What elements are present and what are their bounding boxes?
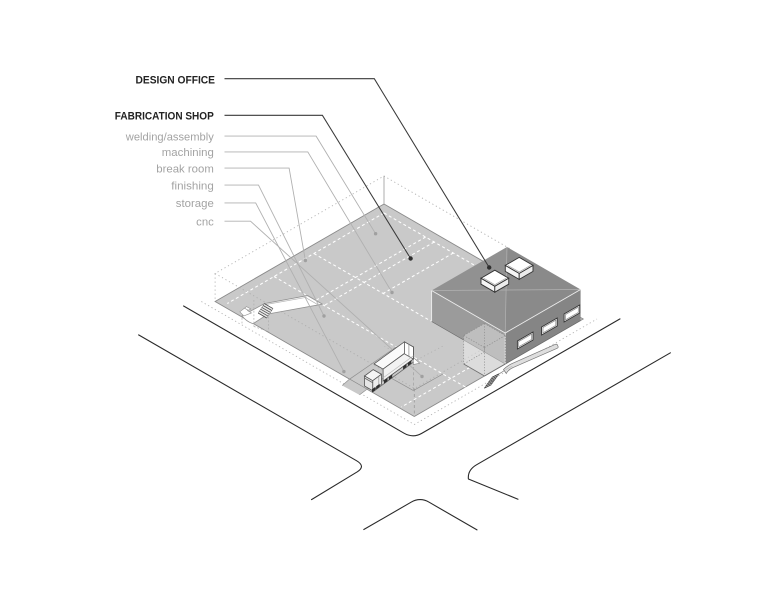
svg-text:finishing: finishing xyxy=(171,180,214,192)
svg-text:machining: machining xyxy=(162,147,214,159)
svg-text:DESIGN OFFICE: DESIGN OFFICE xyxy=(136,74,216,86)
svg-text:break room: break room xyxy=(156,163,214,175)
svg-text:FABRICATION SHOP: FABRICATION SHOP xyxy=(115,111,214,123)
svg-text:cnc: cnc xyxy=(196,216,214,228)
svg-text:welding/assembly: welding/assembly xyxy=(125,131,215,143)
svg-text:storage: storage xyxy=(176,198,214,210)
